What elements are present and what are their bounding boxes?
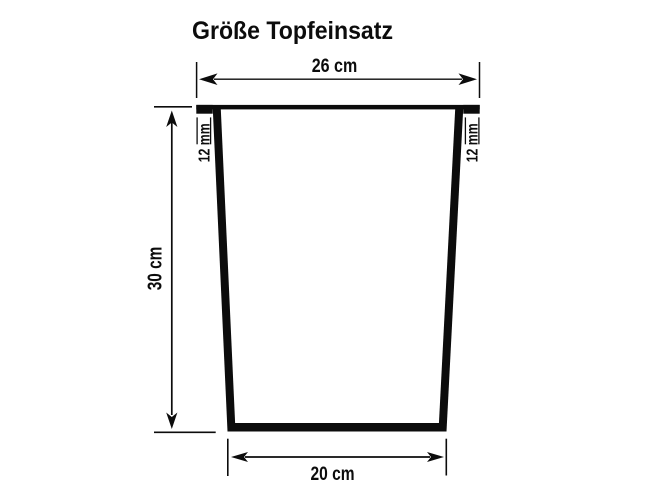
svg-text:12 mm: 12 mm	[465, 123, 482, 162]
svg-text:26 cm: 26 cm	[312, 56, 358, 77]
svg-text:Größe Topfeinsatz: Größe Topfeinsatz	[192, 17, 393, 45]
svg-text:30 cm: 30 cm	[145, 247, 167, 291]
svg-text:12 mm: 12 mm	[196, 123, 213, 162]
svg-text:20 cm: 20 cm	[311, 464, 355, 485]
